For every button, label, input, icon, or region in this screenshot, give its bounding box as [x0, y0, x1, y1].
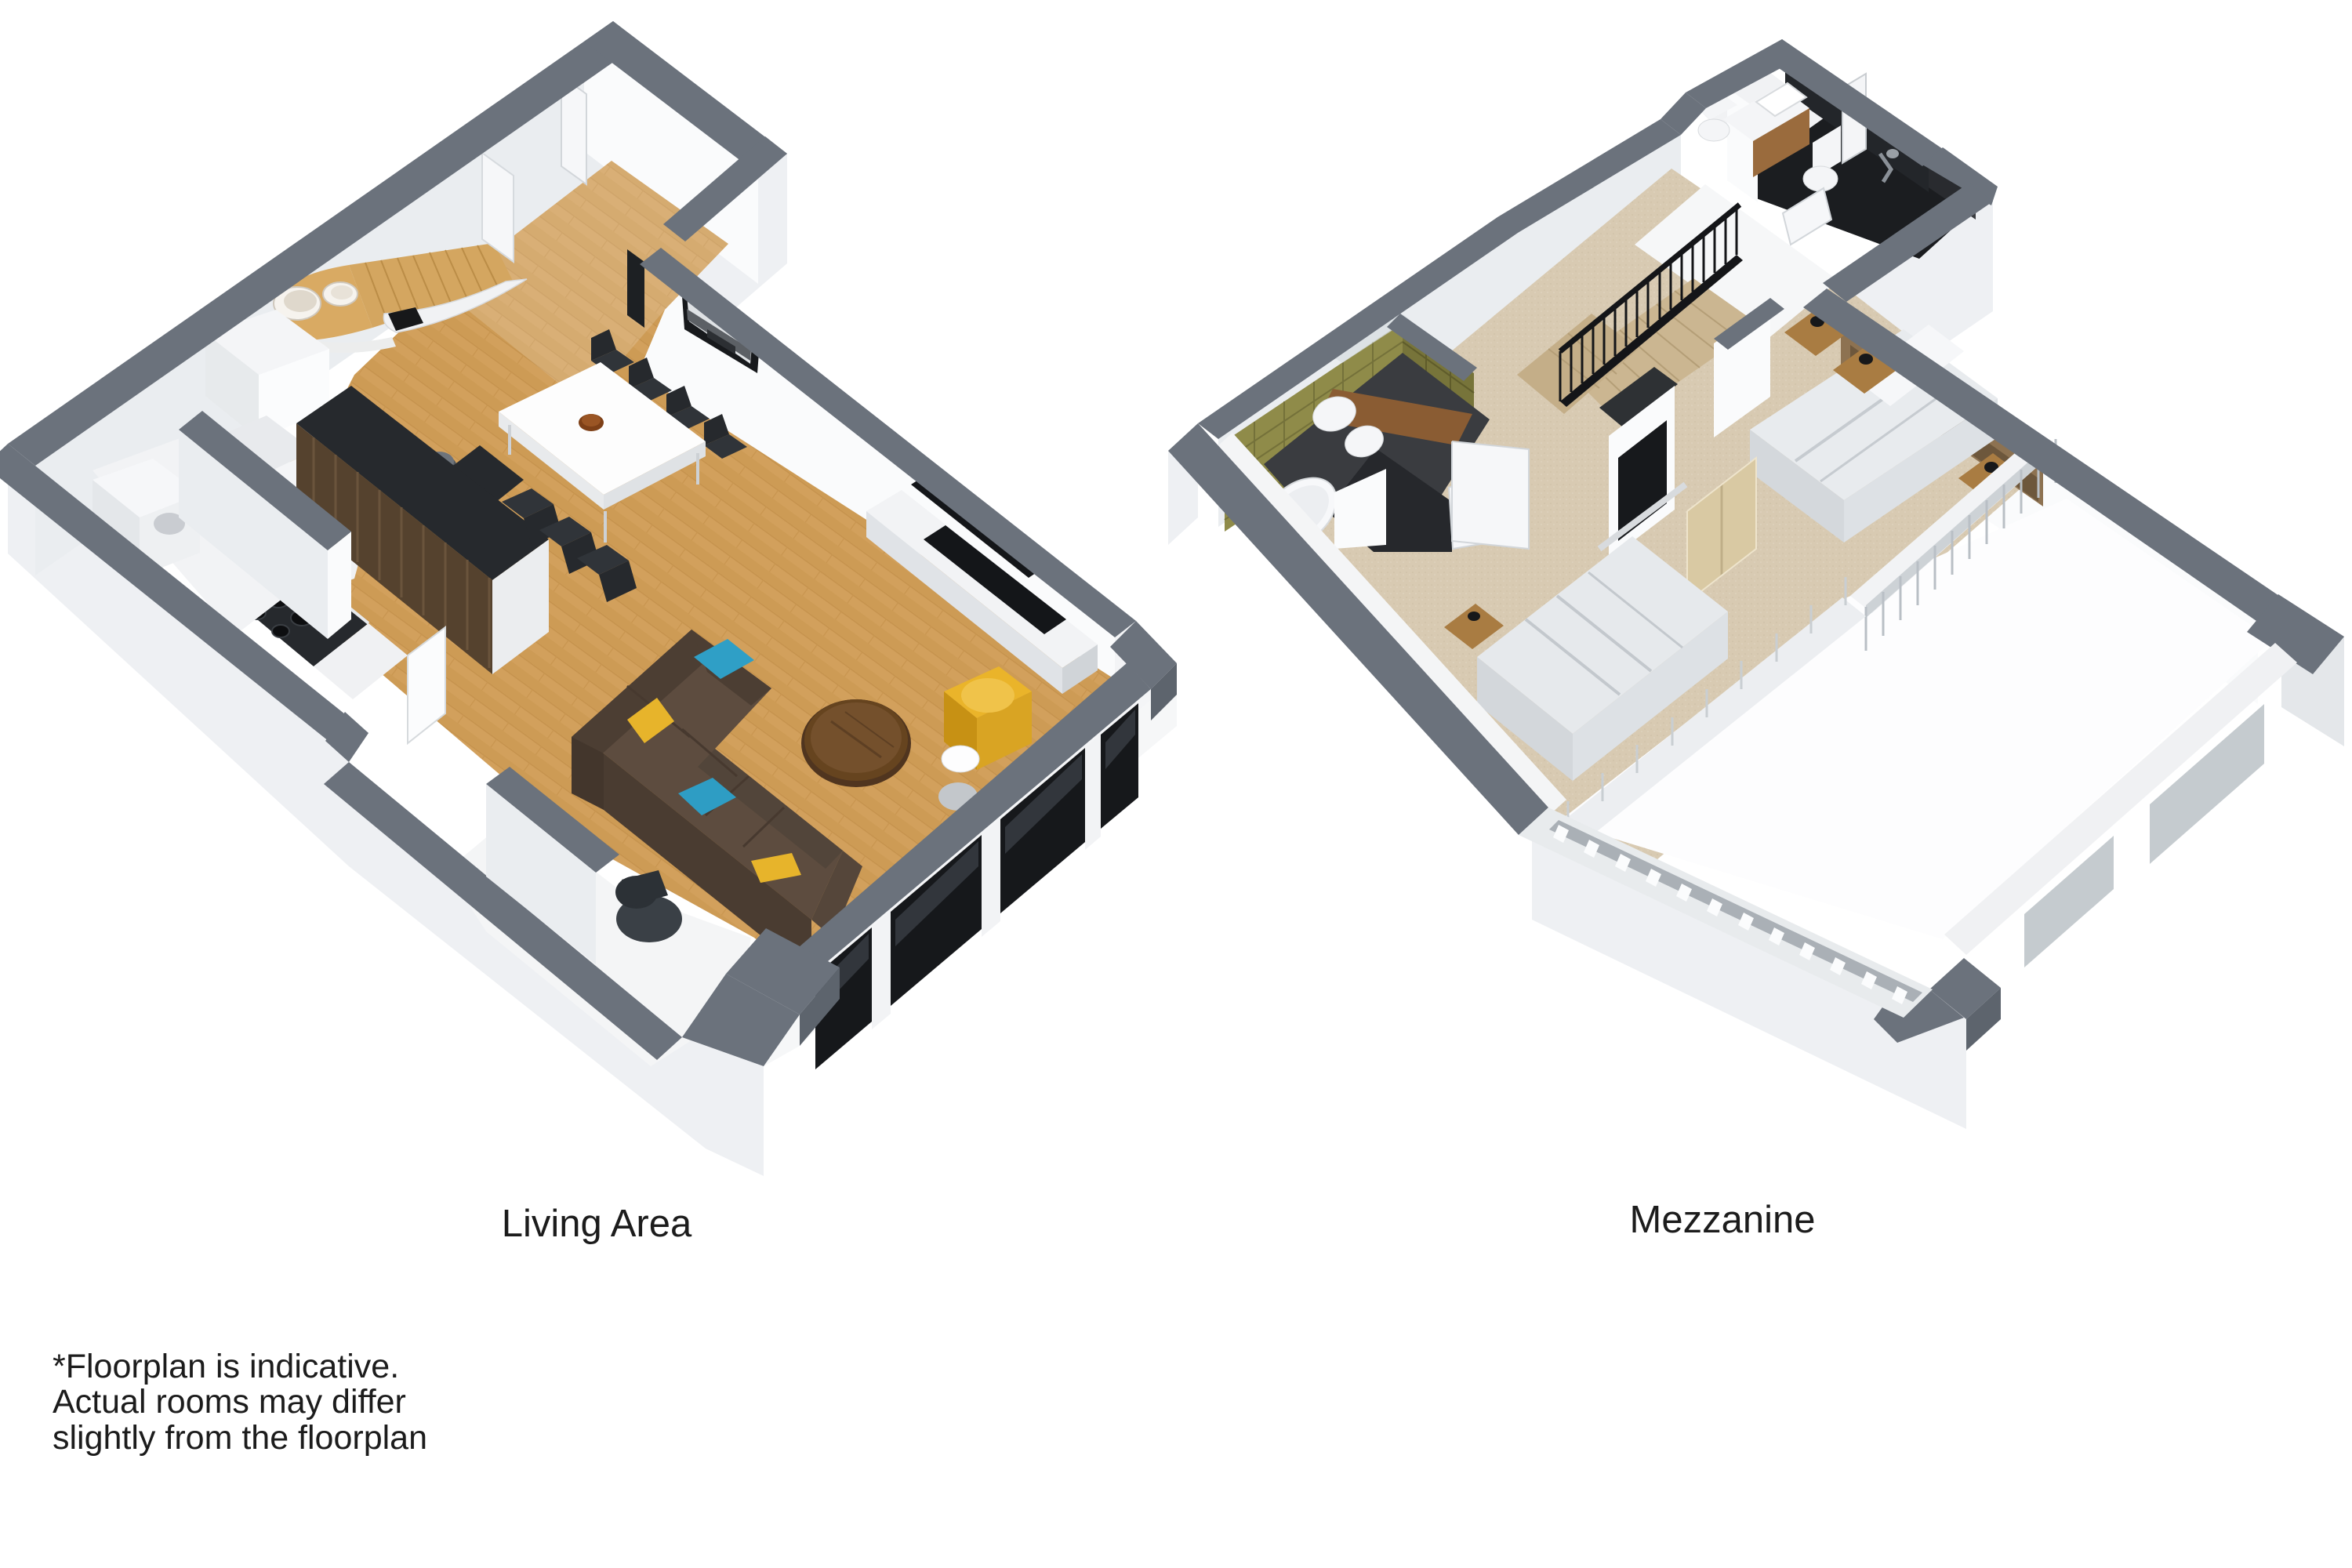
svg-text:slightly from the floorplan: slightly from the floorplan [53, 1419, 427, 1457]
svg-text:Mezzanine: Mezzanine [1630, 1199, 1816, 1241]
svg-text:*Floorplan is indicative.: *Floorplan is indicative. [53, 1348, 399, 1385]
svg-text:Living Area: Living Area [502, 1203, 692, 1245]
svg-text:Actual rooms may differ: Actual rooms may differ [53, 1383, 406, 1421]
